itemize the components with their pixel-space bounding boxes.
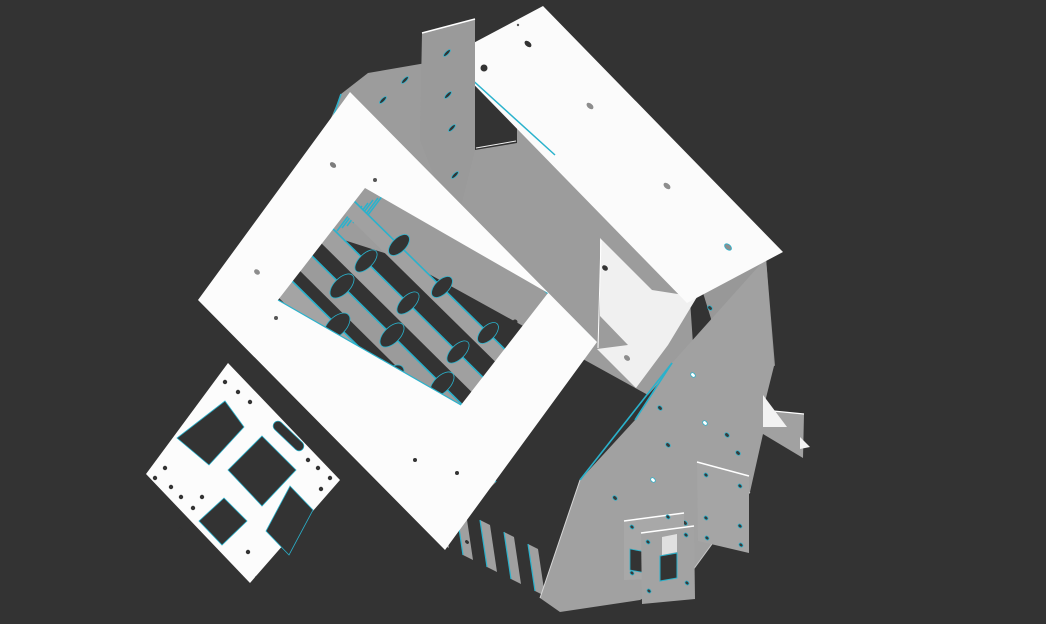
io-hole-6 bbox=[200, 495, 204, 499]
io-hole-5 bbox=[191, 506, 195, 510]
cad-canvas[interactable] bbox=[0, 0, 1046, 624]
connector-bracket-front[interactable] bbox=[641, 526, 695, 604]
tab-4 bbox=[504, 532, 521, 584]
cover-hole-3 bbox=[517, 24, 519, 26]
light-wedge-2 bbox=[800, 437, 810, 449]
io-hole-4 bbox=[179, 495, 183, 499]
io-hole-7 bbox=[223, 380, 227, 384]
io-hole-11 bbox=[316, 466, 320, 470]
io-hole-2 bbox=[163, 466, 167, 470]
io-hole-10 bbox=[306, 458, 310, 462]
io-hole-14 bbox=[246, 550, 250, 554]
bracket-front-window-lower bbox=[660, 553, 677, 581]
io-hole-3 bbox=[169, 485, 173, 489]
bezel-hole-4 bbox=[274, 316, 278, 320]
bezel-hole-6 bbox=[413, 458, 417, 462]
bezel-hole-5 bbox=[513, 320, 518, 325]
io-hole-9 bbox=[248, 400, 252, 404]
tab-5 bbox=[528, 544, 545, 596]
bezel-hole-2 bbox=[373, 178, 377, 182]
io-hole-16 bbox=[178, 528, 182, 532]
cad-viewport[interactable] bbox=[0, 0, 1046, 624]
bracket-front-window-upper bbox=[662, 534, 677, 555]
io-hole-15 bbox=[255, 576, 259, 580]
cover-hole-2 bbox=[481, 65, 488, 72]
io-hole-13 bbox=[319, 487, 323, 491]
connector-bracket-right[interactable] bbox=[697, 462, 749, 553]
bezel-hole-7 bbox=[455, 471, 459, 475]
io-hole-8 bbox=[236, 390, 240, 394]
tab-3 bbox=[480, 520, 497, 572]
io-hole-12 bbox=[328, 476, 332, 480]
io-hole-1 bbox=[153, 476, 157, 480]
